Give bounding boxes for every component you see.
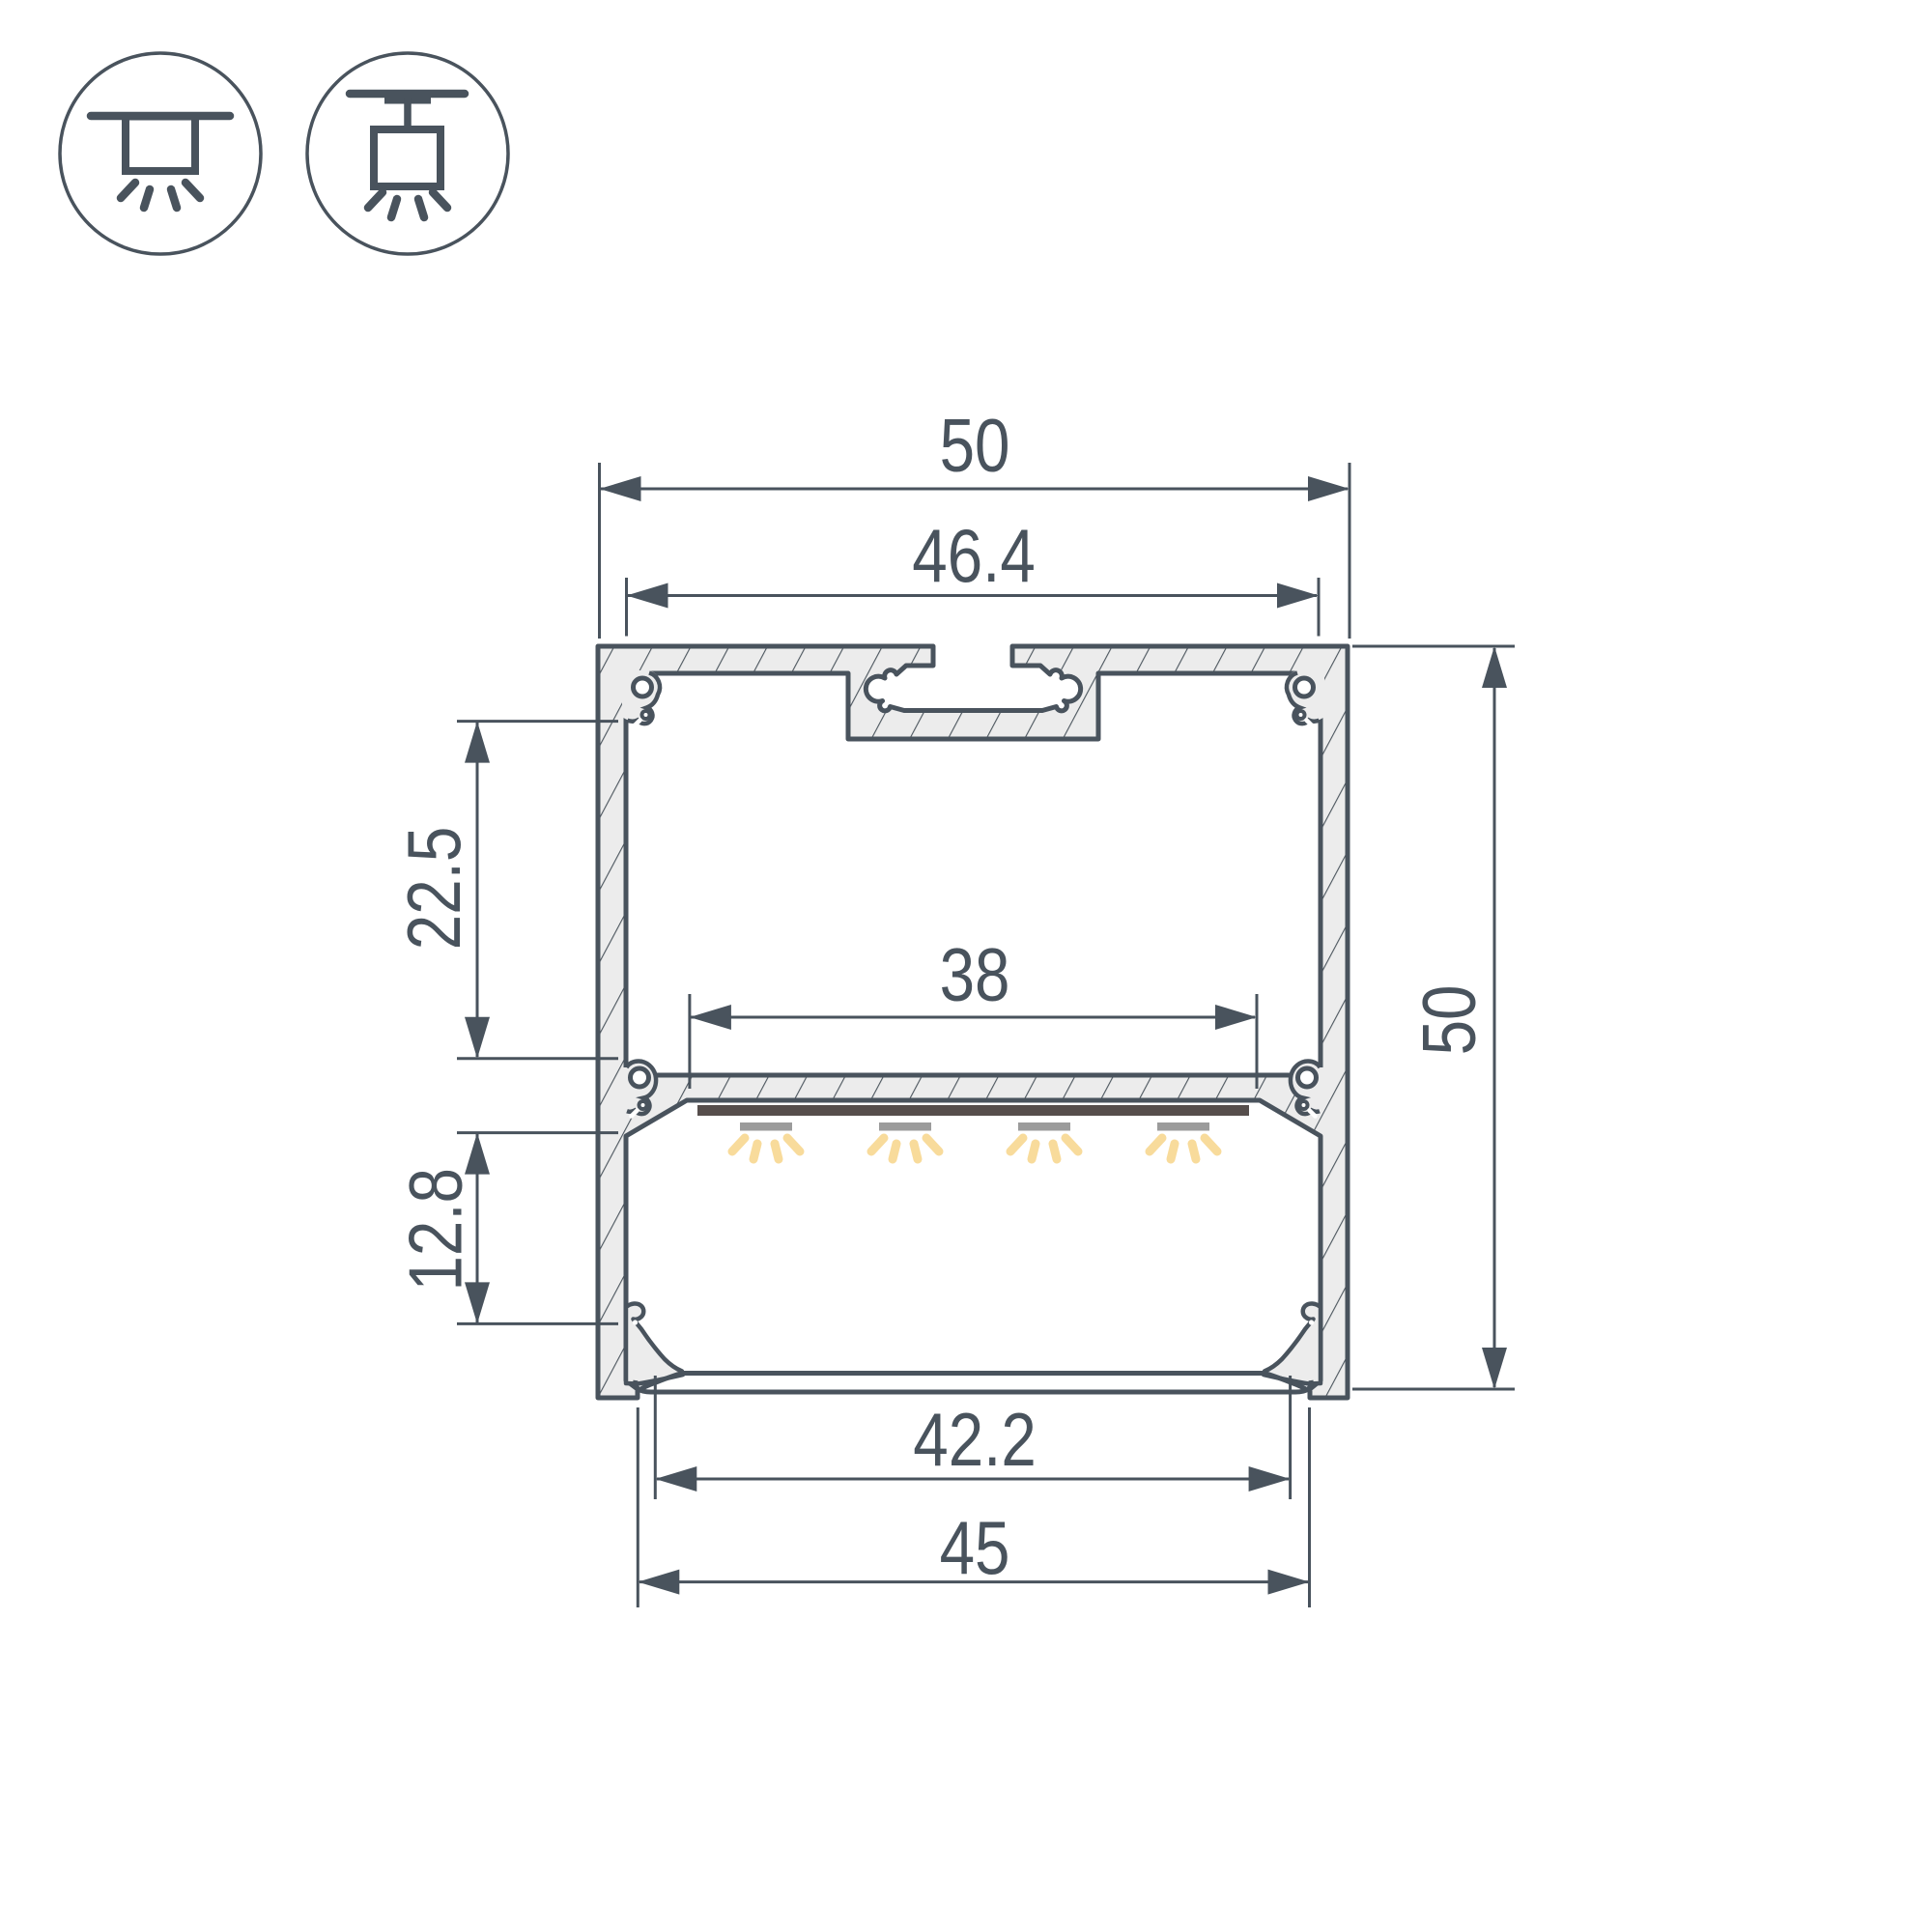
svg-text:38: 38 <box>940 933 1010 1017</box>
svg-text:12.8: 12.8 <box>394 1168 478 1292</box>
svg-text:42.2: 42.2 <box>913 1399 1037 1483</box>
svg-text:22.5: 22.5 <box>393 827 477 951</box>
svg-text:46.4: 46.4 <box>912 515 1036 599</box>
svg-text:45: 45 <box>940 1507 1010 1591</box>
svg-text:50: 50 <box>1407 985 1492 1056</box>
svg-text:50: 50 <box>940 404 1010 488</box>
